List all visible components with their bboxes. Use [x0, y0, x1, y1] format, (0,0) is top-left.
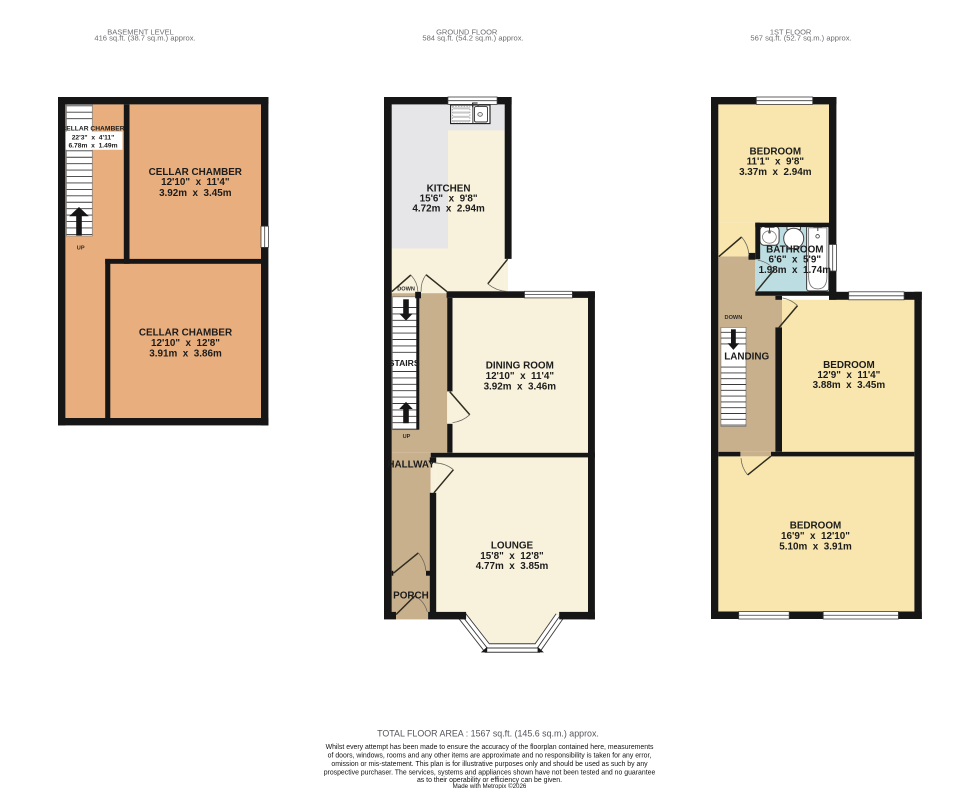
svg-text:DINING ROOM: DINING ROOM	[486, 361, 554, 372]
svg-text:TOTAL FLOOR AREA : 1567 sq.ft.: TOTAL FLOOR AREA : 1567 sq.ft. (145.6 sq…	[377, 729, 599, 739]
svg-text:3.92m x 3.45m: 3.92m x 3.45m	[159, 188, 232, 199]
svg-text:6.78m x 1.49m: 6.78m x 1.49m	[68, 143, 117, 150]
svg-text:PORCH: PORCH	[393, 591, 429, 602]
svg-text:584 sq.ft. (54.2 sq.m.) approx: 584 sq.ft. (54.2 sq.m.) approx.	[422, 34, 523, 43]
svg-text:CELLAR CHAMBER: CELLAR CHAMBER	[139, 327, 232, 338]
svg-text:prospective purchaser. The ser: prospective purchaser. The services, sys…	[324, 770, 656, 777]
svg-text:3.92m x 3.46m: 3.92m x 3.46m	[484, 381, 557, 392]
svg-text:416 sq.ft. (38.7 sq.m.) approx: 416 sq.ft. (38.7 sq.m.) approx.	[94, 34, 195, 43]
svg-text:12'10" x 11'4": 12'10" x 11'4"	[161, 177, 230, 188]
svg-text:4.77m x 3.85m: 4.77m x 3.85m	[476, 561, 549, 572]
svg-text:CELLAR CHAMBER: CELLAR CHAMBER	[61, 126, 124, 133]
svg-text:HALLWAY: HALLWAY	[387, 460, 435, 471]
svg-text:3.88m x 3.45m: 3.88m x 3.45m	[813, 380, 886, 391]
svg-text:567 sq.ft. (52.7 sq.m.) approx: 567 sq.ft. (52.7 sq.m.) approx.	[750, 34, 851, 43]
svg-text:16'9" x 12'10": 16'9" x 12'10"	[781, 531, 850, 542]
svg-text:3.91m x 3.86m: 3.91m x 3.86m	[149, 348, 222, 359]
svg-text:CELLAR CHAMBER: CELLAR CHAMBER	[149, 167, 242, 178]
svg-text:3.37m x 2.94m: 3.37m x 2.94m	[739, 167, 812, 178]
svg-text:UP: UP	[403, 434, 411, 440]
svg-text:1.98m x 1.74m: 1.98m x 1.74m	[759, 265, 832, 276]
svg-text:LANDING: LANDING	[724, 351, 769, 362]
svg-text:4.72m x 2.94m: 4.72m x 2.94m	[412, 204, 485, 215]
svg-text:22'3" x 4'11": 22'3" x 4'11"	[72, 134, 115, 141]
svg-text:12'10" x 11'4": 12'10" x 11'4"	[486, 371, 555, 382]
svg-text:UP: UP	[77, 245, 85, 251]
svg-text:omission or mis-statement. Thi: omission or mis-statement. This plan is …	[331, 761, 648, 768]
svg-text:Made with Metropix ©2026: Made with Metropix ©2026	[453, 783, 527, 789]
svg-text:DOWN: DOWN	[397, 286, 415, 292]
svg-text:STAIRS: STAIRS	[389, 358, 420, 368]
svg-text:DOWN: DOWN	[725, 315, 743, 321]
svg-text:of doors, windows, rooms and a: of doors, windows, rooms and any other i…	[328, 753, 652, 760]
svg-text:BEDROOM: BEDROOM	[790, 521, 842, 532]
svg-text:5.10m x 3.91m: 5.10m x 3.91m	[779, 541, 852, 552]
svg-text:12'10" x 12'8": 12'10" x 12'8"	[151, 338, 220, 349]
svg-text:Whilst every attempt has been: Whilst every attempt has been made to en…	[326, 744, 654, 751]
